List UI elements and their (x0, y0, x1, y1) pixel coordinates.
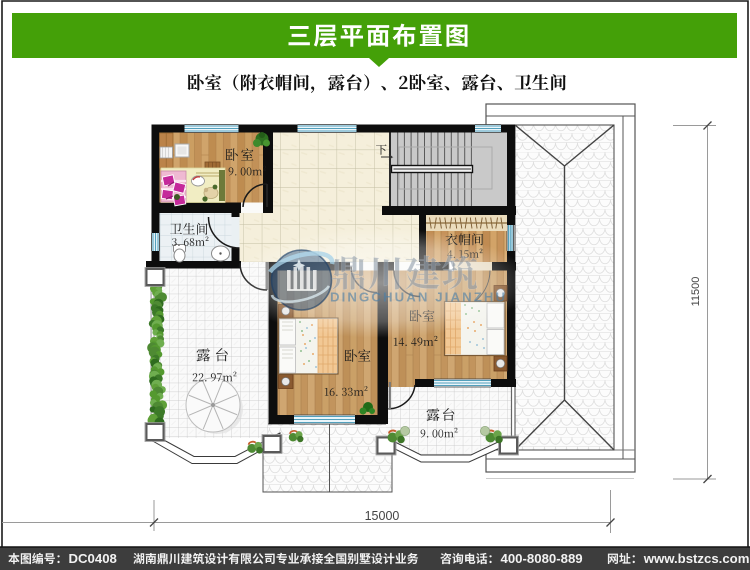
svg-text:400-8080-889: 400-8080-889 (501, 551, 583, 566)
svg-text:www.bstzcs.com: www.bstzcs.com (643, 551, 750, 566)
svg-text:DC0408: DC0408 (69, 551, 117, 566)
svg-text:15000: 15000 (365, 509, 400, 523)
svg-text:DINGCHUAN JIANZHU: DINGCHUAN JIANZHU (330, 290, 507, 305)
svg-text:11500: 11500 (690, 277, 702, 307)
